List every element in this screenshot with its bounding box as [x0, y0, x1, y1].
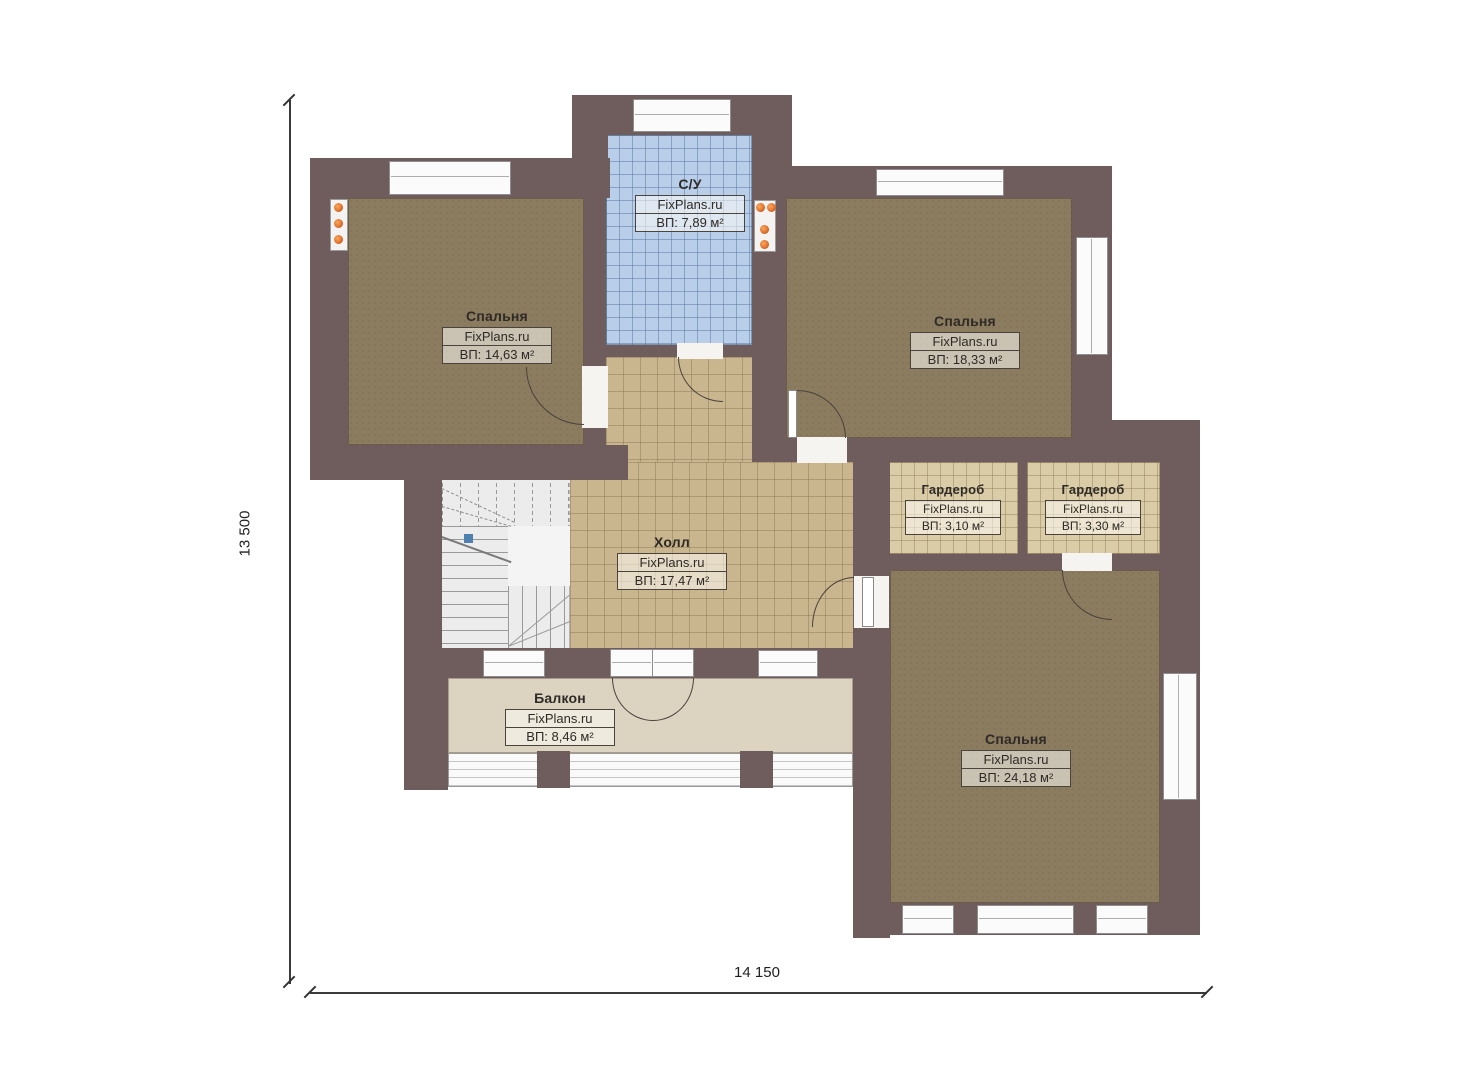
- door-leaf-bedroom-master: [862, 577, 874, 627]
- room-name: Спальня: [961, 731, 1071, 747]
- light-dot: [767, 203, 776, 212]
- room-name: Холл: [617, 534, 727, 550]
- brand-badge: FixPlans.ru: [442, 327, 552, 346]
- light-dot: [756, 203, 765, 212]
- room-name: Спальня: [442, 308, 552, 324]
- window: [1076, 237, 1108, 355]
- wall: [310, 445, 628, 480]
- floor-plan: С/У FixPlans.ru ВП: 7,89 м² Спальня FixP…: [0, 0, 1474, 1080]
- wall: [1018, 462, 1027, 554]
- room-label-bathroom: С/У FixPlans.ru ВП: 7,89 м²: [635, 176, 745, 232]
- window: [758, 650, 818, 677]
- wall: [404, 648, 448, 790]
- door-opening-bedroom-right: [797, 437, 847, 463]
- wall: [853, 438, 890, 938]
- room-name: Гардероб: [1045, 482, 1141, 497]
- room-area: ВП: 7,89 м²: [635, 213, 745, 232]
- window: [633, 99, 731, 132]
- balcony-pillar: [740, 751, 773, 788]
- room-area: ВП: 3,10 м²: [905, 517, 1001, 535]
- room-label-bedroom-left: Спальня FixPlans.ru ВП: 14,63 м²: [442, 308, 552, 364]
- door-opening-wardrobe-right: [1062, 553, 1112, 571]
- stair-marker: [464, 534, 473, 543]
- room-area: ВП: 24,18 м²: [961, 768, 1071, 787]
- wall: [853, 554, 1200, 570]
- room-name: С/У: [635, 176, 745, 192]
- stair-left-flight: [442, 526, 508, 648]
- room-floor-bathroom: [606, 135, 752, 345]
- window: [902, 905, 954, 934]
- window: [483, 650, 545, 677]
- room-name: Гардероб: [905, 482, 1001, 497]
- window: [876, 169, 1004, 196]
- brand-badge: FixPlans.ru: [635, 195, 745, 214]
- light-dot: [334, 219, 343, 228]
- room-label-bedroom-right: Спальня FixPlans.ru ВП: 18,33 м²: [910, 313, 1020, 369]
- room-area: ВП: 8,46 м²: [505, 727, 615, 746]
- light-dot: [334, 235, 343, 244]
- stair-landing: [508, 526, 570, 586]
- room-label-bedroom-master: Спальня FixPlans.ru ВП: 24,18 м²: [961, 731, 1071, 787]
- wall: [404, 445, 442, 680]
- room-name: Спальня: [910, 313, 1020, 329]
- light-dot: [334, 203, 343, 212]
- window: [1096, 905, 1148, 934]
- room-area: ВП: 17,47 м²: [617, 571, 727, 590]
- room-area: ВП: 14,63 м²: [442, 345, 552, 364]
- room-label-wardrobe-left: Гардероб FixPlans.ru ВП: 3,10 м²: [905, 482, 1001, 535]
- balcony-door-right-pane: [652, 649, 694, 677]
- dimension-line-vertical: [289, 100, 291, 984]
- light-dot: [760, 240, 769, 249]
- window: [389, 161, 511, 195]
- dimension-label-horizontal: 14 150: [707, 964, 807, 981]
- balcony-railing: [448, 753, 853, 787]
- brand-badge: FixPlans.ru: [910, 332, 1020, 351]
- brand-badge: FixPlans.ru: [505, 709, 615, 728]
- brand-badge: FixPlans.ru: [905, 500, 1001, 518]
- room-area: ВП: 18,33 м²: [910, 350, 1020, 369]
- dimension-line-horizontal: [310, 992, 1207, 994]
- balcony-door-left-pane: [610, 649, 653, 677]
- room-label-hall: Холл FixPlans.ru ВП: 17,47 м²: [617, 534, 727, 590]
- brand-badge: FixPlans.ru: [961, 750, 1071, 769]
- door-leaf-bedroom-right: [788, 390, 797, 438]
- window: [977, 905, 1074, 934]
- light-dot: [760, 225, 769, 234]
- room-label-wardrobe-right: Гардероб FixPlans.ru ВП: 3,30 м²: [1045, 482, 1141, 535]
- room-label-balcony: Балкон FixPlans.ru ВП: 8,46 м²: [505, 690, 615, 746]
- balcony-pillar: [537, 751, 570, 788]
- brand-badge: FixPlans.ru: [1045, 500, 1141, 518]
- dimension-label-vertical: 13 500: [237, 489, 254, 579]
- wall: [752, 95, 792, 170]
- room-name: Балкон: [505, 690, 615, 706]
- staircase: [442, 480, 570, 648]
- room-area: ВП: 3,30 м²: [1045, 517, 1141, 535]
- door-opening-bedroom-left: [582, 366, 608, 428]
- brand-badge: FixPlans.ru: [617, 553, 727, 572]
- window: [1163, 673, 1197, 800]
